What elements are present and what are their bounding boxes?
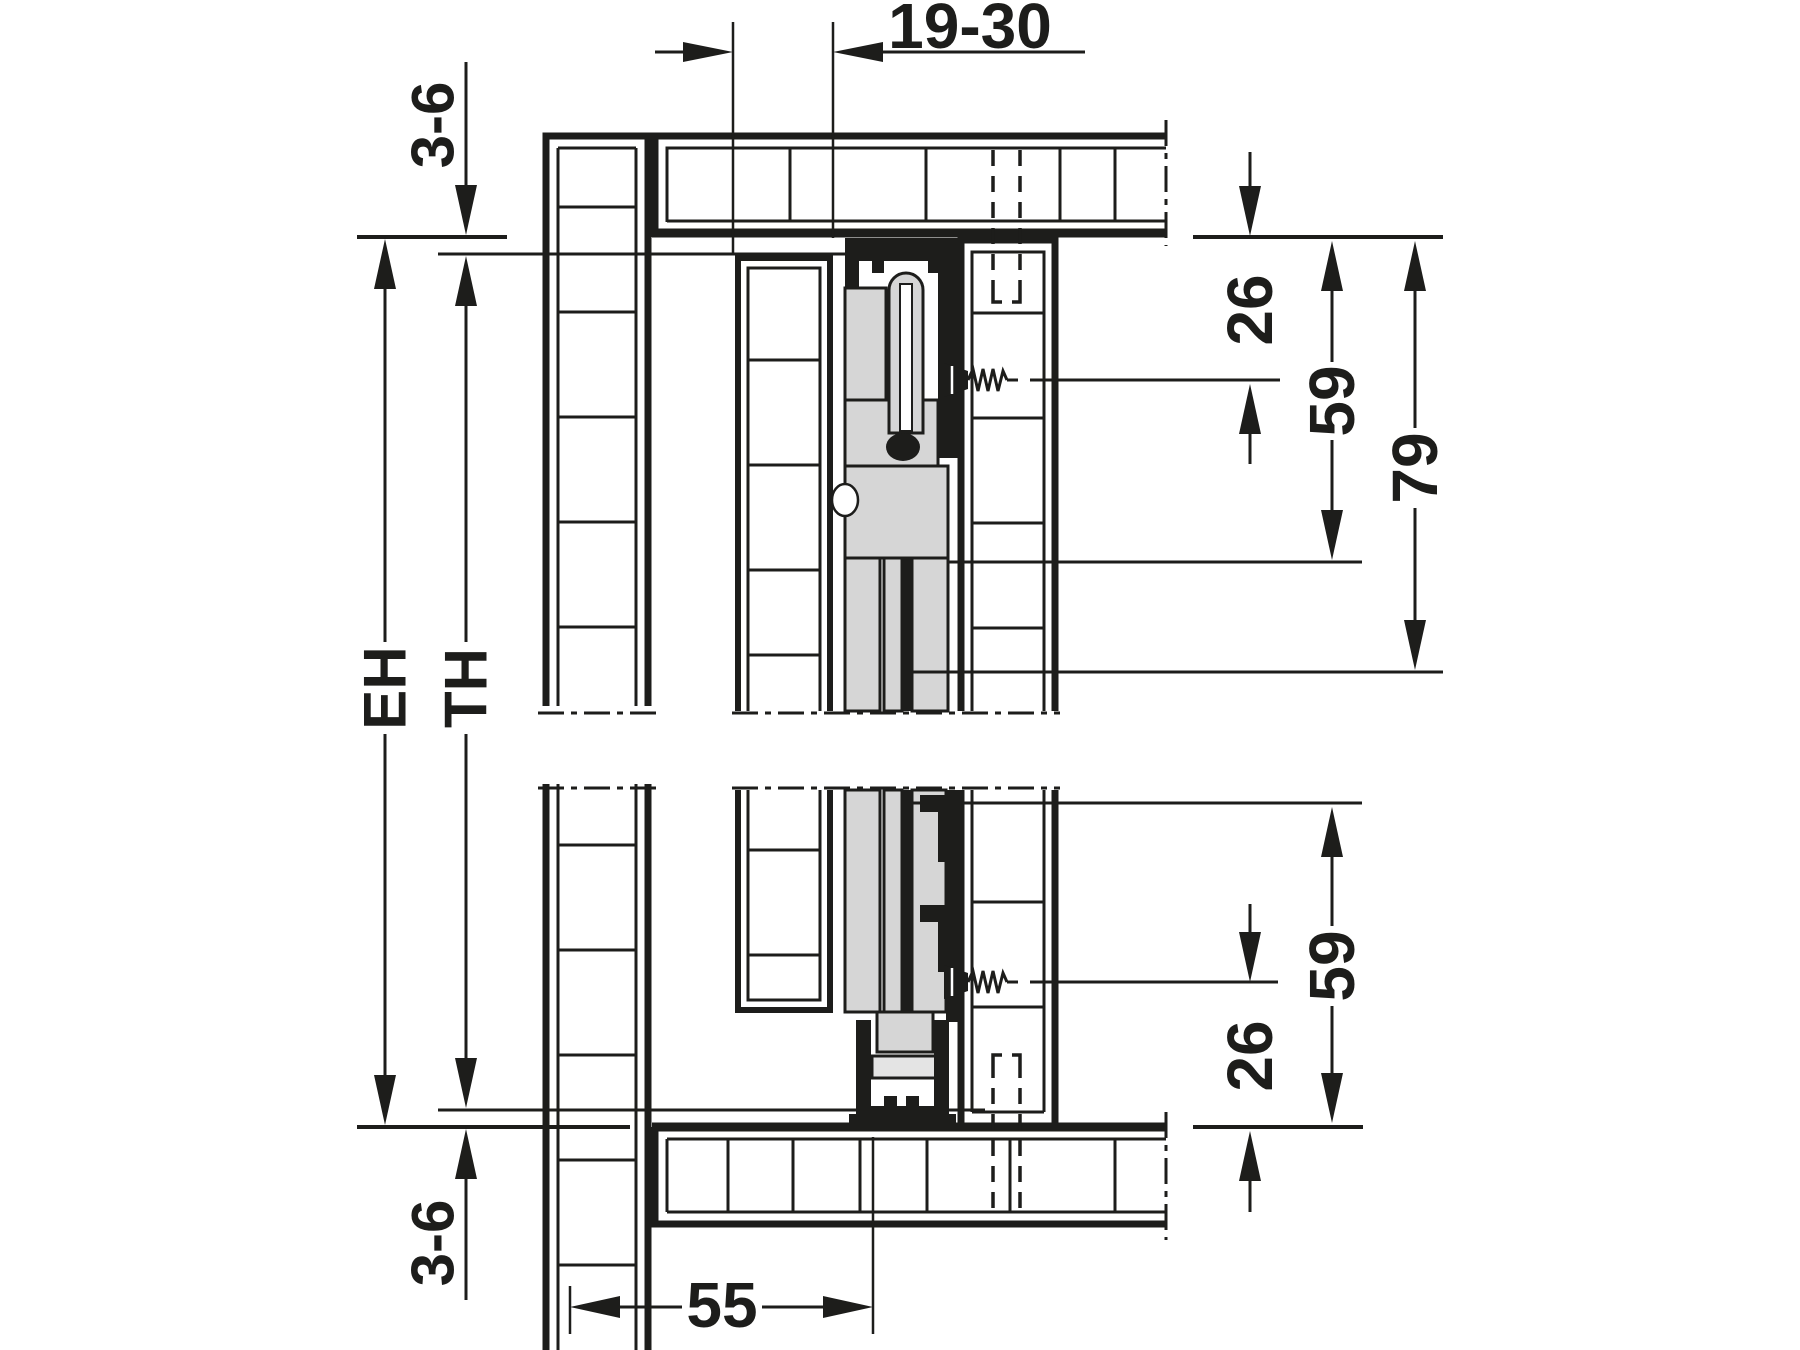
dim-label-door-height: TH: [433, 648, 500, 728]
dim-label-bottom-fitting-depth: 59: [1296, 930, 1368, 1001]
top-mounting-screw: [944, 363, 1018, 397]
dim-top-26: 26: [1030, 152, 1443, 464]
arrow-up-icon: [374, 239, 396, 289]
arrow-up-icon: [1239, 1131, 1261, 1181]
mounting-block: [845, 466, 948, 558]
arrow-down-icon: [455, 1058, 477, 1108]
arrow-up-icon: [1239, 384, 1261, 434]
dim-label-bottom-screw-offset: 26: [1214, 1020, 1286, 1091]
adjustment-slot: [832, 484, 858, 516]
rear-vertical-panel-lower: [961, 790, 1055, 1124]
hanger-plate: [845, 288, 886, 400]
dim-label-top-clearance-total: 79: [1379, 432, 1451, 503]
top-panel: [652, 136, 1166, 237]
arrow-right-icon: [823, 1296, 873, 1318]
bottom-panel: [652, 1127, 1166, 1224]
arrow-up-icon: [455, 256, 477, 306]
dim-label-top-screw-offset: 26: [1214, 274, 1286, 345]
dim-bottom-gap: 3-6: [400, 1129, 478, 1300]
fitting-cross-section-diagram: 19-30 3-6 EH TH 3-6 26: [0, 0, 1800, 1350]
pilot-hole-dashed-bottom: [993, 1055, 1020, 1210]
dim-label-top-gap: 3-6: [400, 82, 467, 169]
technical-drawing-page: 19-30 3-6 EH TH 3-6 26: [0, 0, 1800, 1350]
pilot-hole-dashed-top: [993, 150, 1020, 302]
sliding-door-lower-section: [738, 790, 830, 1010]
dim-label-bottom-gap: 3-6: [400, 1200, 467, 1287]
glide-insert: [872, 1056, 938, 1078]
rear-vertical-panel-upper: [961, 240, 1055, 711]
screw-thread: [968, 971, 1007, 993]
door-shoe: [877, 1012, 933, 1052]
arrow-down-icon: [1239, 932, 1261, 982]
top-roller-carriage: [832, 273, 948, 711]
dim-label-inner-height: EH: [352, 646, 419, 729]
dim-label-door-thickness: 19-30: [888, 0, 1052, 62]
sliding-door-upper-section: [738, 258, 830, 711]
arrow-up-icon: [1321, 807, 1343, 857]
arrow-down-icon: [1404, 620, 1426, 670]
screw-thread: [968, 369, 1007, 391]
dim-label-top-fitting-depth: 59: [1296, 365, 1368, 436]
dim-top-79: 79: [912, 241, 1451, 672]
arrow-down-icon: [1239, 186, 1261, 236]
arrow-down-icon: [374, 1075, 396, 1125]
dim-top-gap: 3-6: [400, 62, 478, 235]
pivot-bolt: [886, 433, 920, 461]
arrow-down-icon: [1321, 1073, 1343, 1123]
arrow-up-icon: [1321, 241, 1343, 291]
dim-label-bottom-inset: 55: [686, 1269, 757, 1341]
dim-bottom-59: 59: [912, 803, 1368, 1123]
arrow-down-icon: [455, 185, 477, 235]
bottom-mounting-screw: [944, 965, 1018, 999]
arrow-down-icon: [1321, 510, 1343, 560]
arrow-up-icon: [455, 1129, 477, 1179]
arrow-up-icon: [1404, 241, 1426, 291]
arrow-right-icon: [683, 42, 733, 62]
dim-top-59: 59: [948, 241, 1368, 562]
arrow-left-icon: [833, 42, 883, 62]
roller-highlight: [900, 284, 912, 431]
